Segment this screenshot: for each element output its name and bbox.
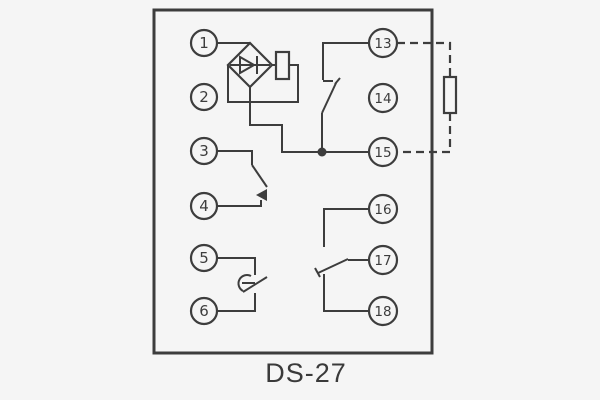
contact-5-blade — [243, 277, 267, 292]
contact-16-17-18 — [315, 209, 369, 311]
contact-3-4 — [217, 151, 267, 206]
terminal-4: 4 — [191, 193, 217, 219]
internal-wiring — [217, 43, 369, 311]
external-resistor-icon — [444, 77, 456, 113]
wire-5-to-contact — [217, 258, 255, 275]
terminal-5-label: 5 — [199, 249, 209, 267]
terminal-16-label: 16 — [374, 202, 391, 218]
terminal-13: 13 — [369, 29, 397, 57]
external-circuit — [397, 43, 456, 152]
terminal-15-label: 15 — [374, 145, 391, 161]
dashed-wire-13-to-resistor — [397, 43, 450, 77]
wire-4-to-contact — [217, 200, 261, 206]
terminal-16: 16 — [369, 195, 397, 223]
wire-6-to-contact — [217, 293, 255, 311]
terminal-14-label: 14 — [374, 91, 391, 107]
terminal-2: 2 — [191, 84, 217, 110]
wire-bridge-to-junction — [250, 87, 322, 152]
terminal-6: 6 — [191, 298, 217, 324]
wire-13-to-contact — [323, 43, 369, 80]
terminal-17-label: 17 — [374, 253, 391, 269]
terminal-4-label: 4 — [199, 197, 209, 215]
wire-16-to-contact — [324, 209, 369, 247]
screenshot-root: 1 2 3 4 5 6 13 14 — [0, 0, 600, 400]
contact-13-blade — [322, 83, 336, 113]
terminal-13-label: 13 — [374, 36, 391, 52]
terminal-3-label: 3 — [199, 142, 209, 160]
contact-4-arrow-icon — [256, 189, 267, 201]
dashed-wire-resistor-to-15 — [397, 113, 450, 152]
terminal-17: 17 — [369, 246, 397, 274]
contact-3-blade — [252, 165, 267, 187]
contact-5-6 — [217, 258, 267, 311]
terminal-1: 1 — [191, 30, 217, 56]
coil-resistor-icon — [276, 52, 289, 79]
terminal-15: 15 — [369, 138, 397, 166]
wire-3-to-contact — [217, 151, 252, 165]
terminal-5: 5 — [191, 245, 217, 271]
wire-18-to-contact — [324, 274, 369, 311]
terminal-2-label: 2 — [199, 88, 209, 106]
terminal-6-label: 6 — [199, 302, 209, 320]
relay-wiring-diagram: 1 2 3 4 5 6 13 14 — [0, 0, 600, 400]
contact-13-15 — [322, 43, 369, 152]
model-caption: DS-27 — [265, 358, 347, 388]
terminal-18-label: 18 — [374, 304, 391, 320]
terminal-18: 18 — [369, 297, 397, 325]
contact-17-blade — [318, 259, 348, 273]
bridge-rectifier — [228, 43, 272, 87]
terminal-1-label: 1 — [199, 34, 209, 52]
terminal-3: 3 — [191, 138, 217, 164]
terminal-14: 14 — [369, 84, 397, 112]
